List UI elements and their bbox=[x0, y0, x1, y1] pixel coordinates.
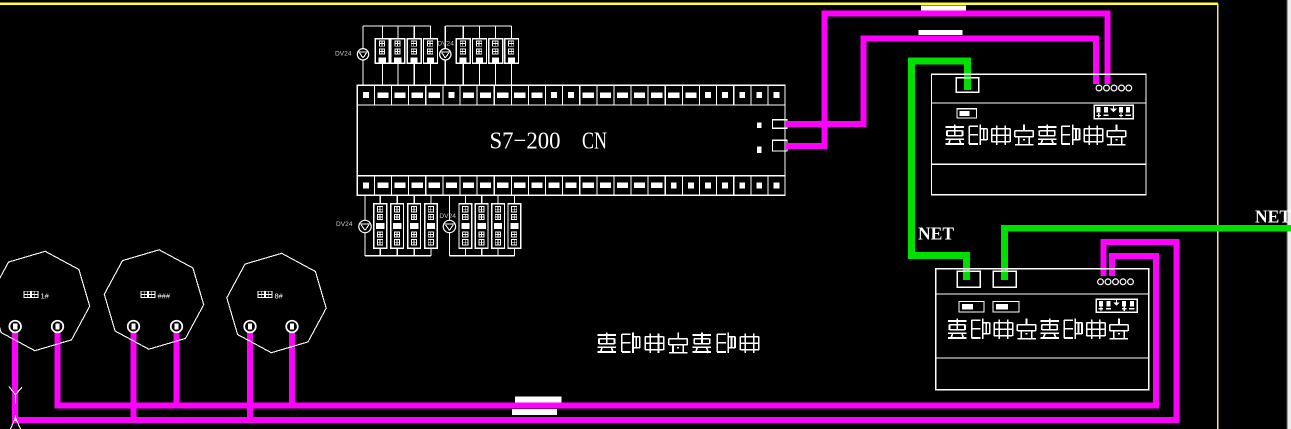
svg-text:CN: CN bbox=[582, 128, 607, 155]
svg-text:DV24: DV24 bbox=[335, 51, 352, 58]
svg-text:1#: 1# bbox=[41, 291, 50, 300]
svg-text:NET: NET bbox=[918, 224, 954, 244]
svg-text:NET: NET bbox=[1255, 207, 1291, 227]
svg-text:###: ### bbox=[158, 291, 171, 300]
svg-text:DV24: DV24 bbox=[437, 41, 454, 48]
svg-text:DV24: DV24 bbox=[439, 213, 456, 220]
svg-text:S7−200: S7−200 bbox=[490, 128, 561, 155]
svg-text:8#: 8# bbox=[275, 291, 284, 300]
svg-text:DV24: DV24 bbox=[336, 221, 353, 228]
